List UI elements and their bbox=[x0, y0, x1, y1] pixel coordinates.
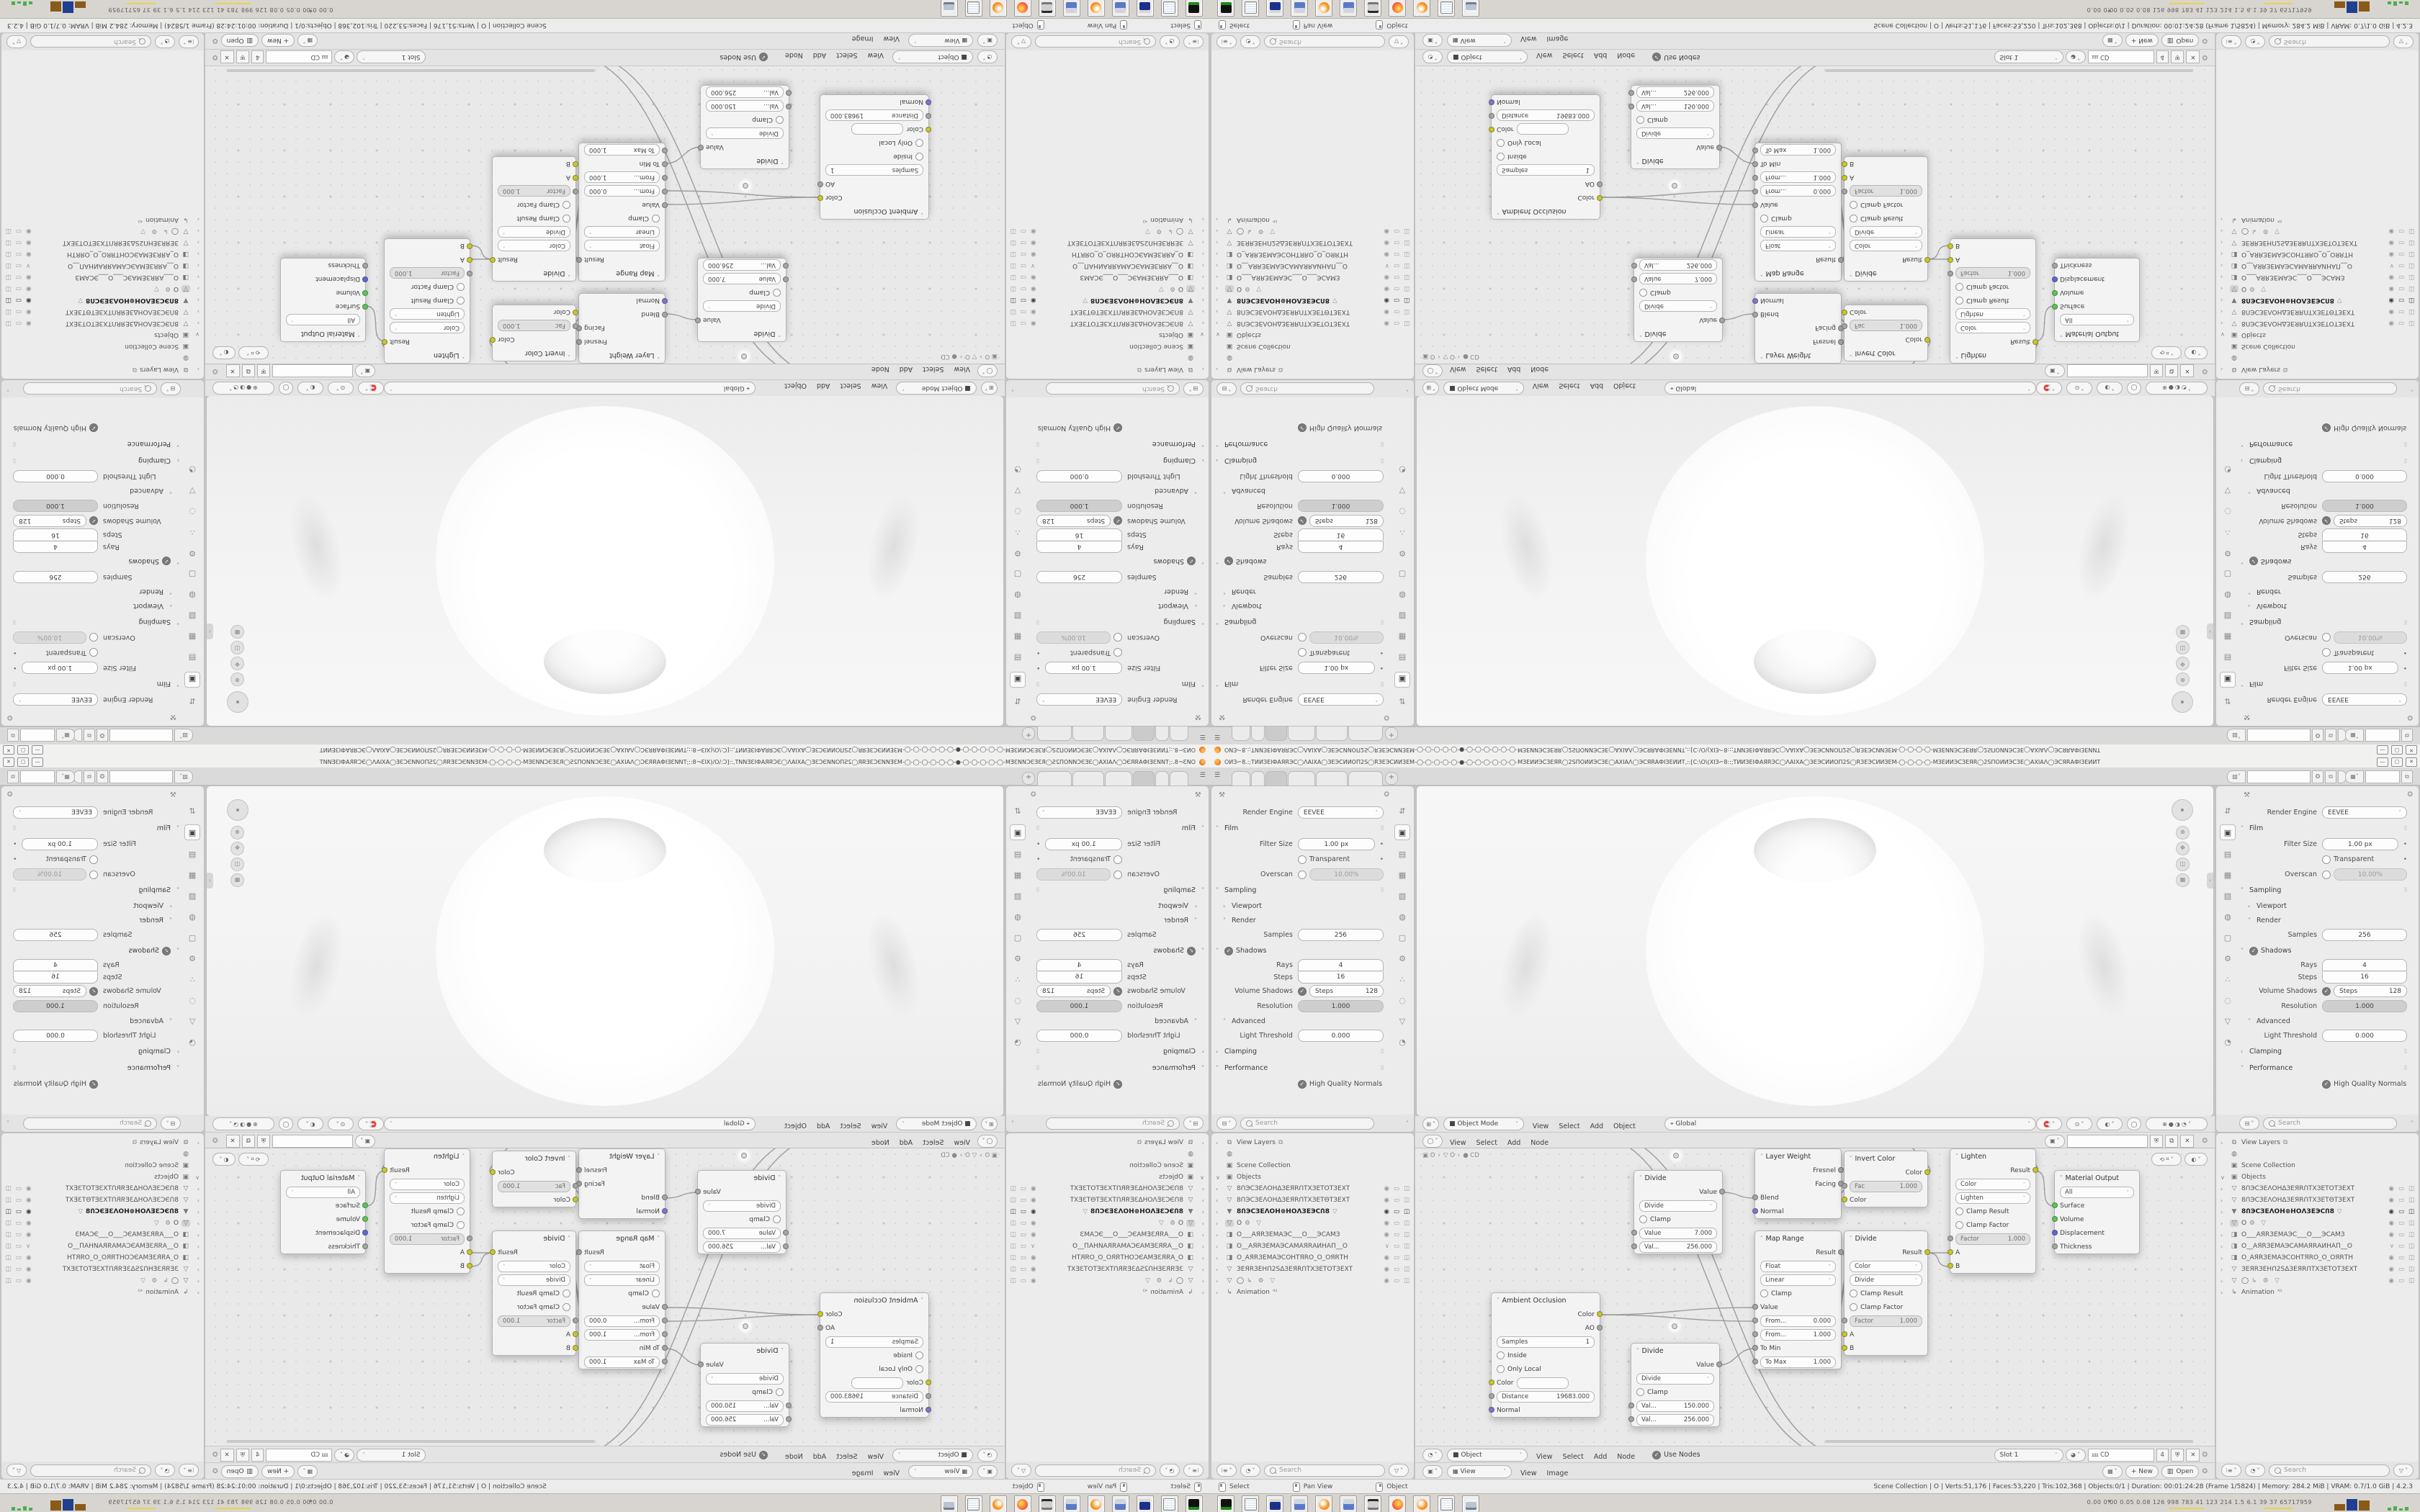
menu-view[interactable]: View bbox=[1536, 1453, 1553, 1461]
open-image-button[interactable]: ▥Open bbox=[221, 35, 259, 48]
prop-field[interactable]: 16 bbox=[2322, 529, 2407, 541]
node-divide-top[interactable]: ˅DivideValueDivide˅ClampValue7.000Val...… bbox=[697, 1170, 786, 1254]
disable-render-icon[interactable]: ◫ bbox=[6, 285, 12, 292]
hide-eye-icon[interactable]: ◉ bbox=[2389, 1266, 2394, 1273]
search-input[interactable]: Search bbox=[2263, 383, 2397, 395]
properties-tab-object-icon[interactable]: ▢ bbox=[1010, 567, 1025, 582]
outliner-row-objects[interactable]: ∨▣Objects bbox=[1009, 329, 1204, 341]
properties-tab-tool-icon[interactable]: ⇵ bbox=[1010, 694, 1025, 708]
prop-section-clamping[interactable]: ›Clamping⠿ bbox=[2241, 1043, 2414, 1060]
breadcrumb-item[interactable]: ▽ O bbox=[1443, 1152, 1455, 1159]
output-socket[interactable] bbox=[382, 339, 387, 345]
node-title[interactable]: ˅Layer Weight bbox=[1755, 1149, 1841, 1164]
pin-icon[interactable]: ✪ bbox=[212, 54, 218, 61]
outliner-row-animation[interactable]: ›↳Animation⁴² bbox=[1009, 214, 1204, 225]
taskbar-app-printer[interactable] bbox=[941, 1495, 958, 1512]
users-count-button[interactable]: 4 bbox=[251, 51, 264, 64]
checkbox-overscan[interactable] bbox=[89, 870, 98, 879]
workspace-tab[interactable] bbox=[1251, 771, 1265, 786]
hide-eye-icon[interactable]: ◉ bbox=[26, 1220, 31, 1227]
taskbar-app-blender[interactable] bbox=[1413, 1495, 1430, 1512]
menu-select[interactable]: Select bbox=[1476, 1139, 1497, 1147]
disable-viewport-icon[interactable]: ▭ bbox=[16, 1254, 22, 1261]
input-socket[interactable] bbox=[362, 1202, 368, 1208]
input-socket[interactable] bbox=[1752, 1208, 1758, 1214]
disable-render-icon[interactable]: ◫ bbox=[1404, 1220, 1410, 1227]
copy-icon[interactable]: ⧉ bbox=[2325, 770, 2336, 783]
disable-viewport-icon[interactable]: ▭ bbox=[1021, 1254, 1026, 1261]
disable-viewport-icon[interactable]: ▭ bbox=[1394, 1231, 1399, 1238]
hide-eye-icon[interactable]: ◉ bbox=[26, 1208, 31, 1215]
mode-dropdown[interactable]: ■ Object Mode˅ bbox=[896, 382, 977, 395]
menu-view[interactable]: View bbox=[1536, 51, 1553, 59]
prop-field[interactable]: 10.00% bbox=[1036, 631, 1111, 644]
node-dropdown-divide[interactable]: Divide˅ bbox=[706, 128, 784, 140]
node-checkbox-clamp-factor[interactable] bbox=[457, 283, 465, 291]
outliner-object-row[interactable]: ›▽ЗЕЯRЗЕНՈ2SΔЗЕЯRՈТХЗЕТОТЗЕХТ◉▭◫ bbox=[2220, 237, 2416, 248]
workspace-tab[interactable] bbox=[1232, 771, 1250, 786]
horizontal-scrollbar[interactable] bbox=[1825, 1440, 2193, 1443]
node-dropdown-lighten[interactable]: Lighten˅ bbox=[390, 1192, 465, 1204]
expand-arrow-icon[interactable]: › bbox=[1198, 228, 1204, 235]
menu-hamburger-icon[interactable]: ☰ bbox=[1214, 772, 1223, 779]
output-socket[interactable] bbox=[1924, 1249, 1930, 1255]
outliner-row-animation[interactable]: ›↳Animation⁴² bbox=[4, 1287, 200, 1298]
scene-name-field[interactable] bbox=[2247, 770, 2311, 783]
output-socket[interactable] bbox=[490, 1169, 496, 1175]
properties-tab-object-data-icon[interactable]: ▽ bbox=[2220, 1014, 2235, 1028]
properties-tab-material-icon[interactable]: ◔ bbox=[1010, 1035, 1025, 1049]
properties-tab-object-data-icon[interactable]: ▽ bbox=[1395, 1014, 1410, 1028]
disable-viewport-icon[interactable]: ▭ bbox=[1394, 1254, 1399, 1261]
navigation-gizmo[interactable] bbox=[2172, 799, 2193, 821]
close-icon[interactable]: ✕ bbox=[226, 1135, 240, 1148]
node-field-value[interactable]: Value7.000 bbox=[703, 274, 781, 285]
hide-eye-icon[interactable]: ◉ bbox=[1384, 320, 1389, 327]
properties-tab-scene-icon[interactable]: ▧ bbox=[1010, 888, 1025, 903]
input-socket[interactable] bbox=[1948, 243, 1953, 249]
expand-arrow-icon[interactable]: › bbox=[1198, 263, 1204, 269]
tool-icon[interactable]: ⚒ bbox=[2244, 791, 2250, 799]
properties-tab-render-icon[interactable]: ▣ bbox=[1010, 672, 1026, 688]
workspace-tab[interactable] bbox=[1105, 771, 1132, 786]
input-socket[interactable] bbox=[362, 1216, 368, 1222]
disable-render-icon[interactable]: ◫ bbox=[1010, 1243, 1016, 1250]
disable-viewport-icon[interactable]: ▭ bbox=[16, 285, 22, 292]
editor-type-dropdown[interactable]: ◯˅ bbox=[1422, 1135, 1443, 1148]
node-field-factor[interactable]: Factor1.000 bbox=[1955, 268, 2030, 279]
disable-render-icon[interactable]: ◫ bbox=[6, 1208, 12, 1215]
properties-tab-physics-icon[interactable]: ◌ bbox=[2220, 993, 2235, 1007]
copy-icon[interactable]: ⧉ bbox=[7, 729, 19, 742]
disable-render-icon[interactable]: ◫ bbox=[1010, 1266, 1016, 1273]
zoom-icon[interactable]: ⊕ bbox=[2177, 673, 2189, 685]
node-dropdown-color[interactable]: Color˅ bbox=[390, 1179, 465, 1190]
input-socket[interactable] bbox=[573, 161, 578, 167]
disable-viewport-icon[interactable]: ▭ bbox=[1394, 308, 1399, 315]
node-title[interactable]: ˅Ambient Occlusion bbox=[1492, 1293, 1600, 1308]
node-field-factor[interactable]: Factor1.000 bbox=[1850, 186, 1922, 197]
pin-icon[interactable]: ✪ bbox=[212, 1452, 218, 1459]
node-divide-bottom[interactable]: ˅DivideValueDivide˅ClampVal...150.000Val… bbox=[700, 1343, 789, 1427]
menu-select[interactable]: Select bbox=[1559, 382, 1579, 390]
node-field-from[interactable]: From...0.000 bbox=[584, 186, 660, 197]
checkbox-high-quality-normals[interactable]: ✓ bbox=[89, 1080, 98, 1089]
expand-arrow-icon[interactable]: ∨ bbox=[2220, 1174, 2227, 1181]
menu-add[interactable]: Add bbox=[817, 1122, 830, 1130]
transform-orientation-dropdown[interactable]: ⌖ Global˅ bbox=[384, 1117, 756, 1130]
animate-dot-icon[interactable]: • bbox=[1036, 649, 1040, 657]
node-field-from[interactable]: From...0.000 bbox=[1760, 1315, 1836, 1327]
outliner-object-row[interactable]: ›▽8ՈЭСЗЕΛОНΔЗЕЯRՈТХЗЕТΘТЗЕХТ◉▭◫ bbox=[1216, 306, 1411, 318]
menu-view[interactable]: View bbox=[867, 51, 884, 59]
prop-section-clamping[interactable]: ›Clamping⠿ bbox=[1216, 452, 1391, 469]
animate-dot-icon[interactable]: • bbox=[1036, 665, 1040, 672]
chevron-down-icon[interactable]: ˅ bbox=[1406, 1120, 1409, 1127]
prop-field[interactable]: 4 bbox=[1036, 959, 1122, 971]
menu-select[interactable]: Select bbox=[836, 51, 857, 59]
menu-view[interactable]: View bbox=[1450, 1139, 1466, 1147]
expand-arrow-icon[interactable]: › bbox=[1198, 1232, 1204, 1238]
prop-select-eevee[interactable]: EEVEE˅ bbox=[1036, 693, 1122, 706]
hide-eye-icon[interactable]: ◉ bbox=[2389, 239, 2394, 246]
hide-eye-icon[interactable]: ◉ bbox=[1384, 1197, 1389, 1204]
disable-render-icon[interactable]: ◫ bbox=[2408, 274, 2414, 281]
menu-view[interactable]: View bbox=[883, 35, 900, 42]
scene-selector[interactable]: ▧˅ ✪ ⧉ bbox=[73, 770, 193, 783]
properties-tab-physics-icon[interactable]: ◌ bbox=[1010, 993, 1025, 1007]
outliner-object-row[interactable]: ›▽◯↳ ⚙ ▽◉▭◫ bbox=[2220, 225, 2416, 237]
outliner-object-row[interactable]: ›▼8ՈЭСЗЕΛОН⊕НОΛЗЕЭСՈ8▽◉▭◫ bbox=[1009, 1206, 1204, 1218]
checkbox-high-quality-normals[interactable]: ✓ bbox=[1113, 424, 1122, 433]
checkbox-shadows[interactable]: ✓ bbox=[2249, 557, 2258, 566]
node-invert-color[interactable]: ˅Invert ColorColorFac1.000Color bbox=[492, 1151, 576, 1207]
node-title[interactable]: ˅Layer Weight bbox=[579, 348, 665, 363]
outliner-object-row[interactable]: ›▼8ՈЭСЗЕΛОН⊕НОΛЗЕЭСՈ8▽◉▭◫ bbox=[1216, 294, 1411, 306]
node-divide-bottom[interactable]: ˅DivideValueDivide˅ClampVal...150.000Val… bbox=[1631, 1343, 1720, 1427]
node-layer-weight[interactable]: ˅Layer WeightFresnelFacingBlendNormal bbox=[1754, 1148, 1842, 1219]
disable-render-icon[interactable]: ◫ bbox=[2408, 239, 2414, 246]
node-field-factor[interactable]: Factor1.000 bbox=[390, 1233, 465, 1245]
outliner-object-row[interactable]: ›▽◯↳ ⚙ ▽◉▭◫ bbox=[1009, 1275, 1204, 1287]
expand-arrow-icon[interactable]: › bbox=[1198, 1243, 1204, 1250]
expand-arrow-icon[interactable]: › bbox=[193, 1140, 200, 1146]
copy-icon[interactable]: ⧉ bbox=[84, 729, 95, 742]
properties-tab-physics-icon[interactable]: ◌ bbox=[185, 505, 200, 519]
properties-tab-view-layer-icon[interactable]: ▦ bbox=[2220, 868, 2235, 882]
outliner-object-row[interactable]: ›▽O⚙ ▽◉▭◫ bbox=[2220, 283, 2416, 294]
taskbar-app-floppy[interactable] bbox=[1266, 1495, 1283, 1512]
reroute-node[interactable] bbox=[1667, 178, 1682, 194]
node-checkbox-clamp-factor[interactable] bbox=[1850, 1303, 1857, 1311]
menu-view[interactable]: View bbox=[1520, 35, 1537, 42]
disable-viewport-icon[interactable]: ▭ bbox=[16, 308, 22, 315]
menu-select[interactable]: Select bbox=[840, 1122, 861, 1130]
taskbar-app-notepad[interactable] bbox=[1161, 0, 1178, 17]
properties-tab-modifiers-icon[interactable]: ⚙ bbox=[185, 546, 200, 561]
output-socket[interactable] bbox=[817, 1325, 823, 1331]
fake-user-shield-icon[interactable]: ⛨ bbox=[2150, 1135, 2163, 1148]
menu-image[interactable]: Image bbox=[852, 1470, 874, 1477]
properties-tab-material-icon[interactable]: ◔ bbox=[1010, 463, 1025, 477]
outliner-filter-icon[interactable]: ◔˅ bbox=[155, 35, 175, 48]
disable-render-icon[interactable]: ◫ bbox=[6, 239, 12, 246]
output-socket[interactable] bbox=[817, 181, 823, 187]
expand-arrow-icon[interactable]: › bbox=[193, 217, 200, 223]
workspace-tab[interactable] bbox=[1170, 771, 1188, 786]
use-nodes-checkbox[interactable]: ✓ bbox=[759, 1451, 768, 1459]
taskbar-app-blender[interactable] bbox=[1315, 1495, 1332, 1512]
outliner-object-row[interactable]: ›▽◯↳ ⚙ ▽◉▭◫ bbox=[1216, 1275, 1411, 1287]
properties-tab-tool-icon[interactable]: ⇵ bbox=[185, 804, 200, 818]
outliner-row-objects[interactable]: ∨▣Objects bbox=[4, 1171, 200, 1183]
input-socket[interactable] bbox=[467, 257, 472, 263]
outliner-object-row[interactable]: ›▽8ՈЭСЗЕΛОНΔЗЕЯRՈТХЗЕТОТЗЕХТ◉▭◫ bbox=[1216, 318, 1411, 329]
properties-tab-material-icon[interactable]: ◔ bbox=[185, 463, 200, 477]
hide-eye-icon[interactable]: ◉ bbox=[26, 274, 31, 281]
node-field-value[interactable]: Value7.000 bbox=[1639, 1228, 1717, 1239]
prop-field[interactable]: 1.00 px bbox=[22, 838, 98, 850]
expand-arrow-icon[interactable]: › bbox=[2220, 1243, 2227, 1250]
hide-eye-icon[interactable]: ◉ bbox=[1031, 228, 1036, 235]
node-checkbox-inside[interactable] bbox=[915, 1351, 923, 1359]
input-socket[interactable] bbox=[1489, 113, 1494, 119]
prop-section-clamping[interactable]: ›Clamping⠿ bbox=[1029, 1043, 1204, 1060]
disable-render-icon[interactable]: ◫ bbox=[2408, 297, 2414, 304]
shader-type-dropdown[interactable]: ■ Object˅ bbox=[1447, 1449, 1528, 1462]
editor-type-dropdown[interactable]: ◯˅ bbox=[977, 1135, 998, 1148]
taskbar-app-monitor[interactable] bbox=[1364, 0, 1381, 17]
node-dropdown-all[interactable]: All˅ bbox=[2060, 1187, 2134, 1198]
outliner-row-animation[interactable]: ›↳Animation⁴² bbox=[1216, 214, 1411, 225]
prop-section-film[interactable]: ˅Film⠿ bbox=[2241, 675, 2414, 692]
node-checkbox-clamp-factor[interactable] bbox=[457, 1221, 465, 1229]
menu-hamburger-icon[interactable]: ☰ bbox=[1214, 733, 1223, 740]
taskbar-app-notepad[interactable] bbox=[965, 1495, 982, 1512]
reroute-node[interactable] bbox=[1667, 1318, 1682, 1334]
properties-tab-scene-icon[interactable]: ▧ bbox=[185, 888, 200, 903]
node-field-value[interactable]: Value7.000 bbox=[1639, 274, 1717, 285]
disable-viewport-icon[interactable]: ▭ bbox=[1021, 274, 1026, 281]
disable-render-icon[interactable]: ◫ bbox=[6, 308, 12, 315]
node-dropdown-color[interactable]: Color˅ bbox=[390, 323, 465, 334]
output-socket[interactable] bbox=[2033, 339, 2038, 345]
prop-section-shadows[interactable]: ˅✓Shadows bbox=[6, 942, 179, 959]
hide-eye-icon[interactable]: ◉ bbox=[2389, 1277, 2394, 1284]
tool-icon[interactable]: ⚒ bbox=[1195, 713, 1201, 721]
xray-toggle-icon[interactable]: ◯ bbox=[2127, 1117, 2141, 1130]
expand-arrow-icon[interactable]: › bbox=[193, 228, 200, 235]
menu-add[interactable]: Add bbox=[817, 382, 830, 390]
properties-tab-output-icon[interactable]: ▤ bbox=[1395, 651, 1410, 665]
prop-field[interactable]: Steps128 bbox=[13, 515, 86, 527]
disable-render-icon[interactable]: ◫ bbox=[6, 320, 12, 327]
input-socket[interactable] bbox=[1752, 148, 1758, 153]
properties-tab-modifiers-icon[interactable]: ⚙ bbox=[2220, 546, 2235, 561]
expand-arrow-icon[interactable]: › bbox=[193, 366, 200, 373]
disable-viewport-icon[interactable]: ▭ bbox=[1394, 274, 1399, 281]
chevron-down-icon[interactable]: ˅ bbox=[2411, 1120, 2414, 1127]
outliner-row-icon[interactable]: ◍ bbox=[1009, 352, 1204, 364]
prop-field[interactable]: 1.00 px bbox=[2322, 838, 2398, 850]
prop-section-film[interactable]: ˅Film⠿ bbox=[1216, 820, 1391, 837]
input-socket[interactable] bbox=[1842, 1331, 1847, 1337]
outliner-row-view-layers[interactable]: ›⧉View Layers⧉ bbox=[4, 364, 200, 375]
workspace-tab[interactable] bbox=[1037, 726, 1072, 741]
prop-field[interactable]: Steps128 bbox=[2334, 515, 2407, 527]
pin-icon[interactable]: ✪ bbox=[2202, 1138, 2208, 1145]
prop-field[interactable]: 0.000 bbox=[1298, 470, 1384, 482]
expand-arrow-icon[interactable]: › bbox=[2220, 1140, 2227, 1146]
disable-render-icon[interactable]: ◫ bbox=[1010, 1197, 1016, 1204]
disable-render-icon[interactable]: ◫ bbox=[1010, 1185, 1016, 1192]
prop-subsection-advanced[interactable]: ˅Advanced bbox=[2241, 484, 2414, 498]
disable-viewport-icon[interactable]: ▭ bbox=[1394, 297, 1399, 304]
output-socket[interactable] bbox=[576, 1249, 582, 1255]
input-socket[interactable] bbox=[926, 1380, 931, 1385]
minimize-button[interactable]: — bbox=[2377, 746, 2388, 755]
pin-icon[interactable]: ✪ bbox=[2202, 368, 2208, 375]
properties-tab-world-icon[interactable]: ◍ bbox=[1395, 909, 1410, 924]
outliner-object-row[interactable]: ›▽ЗЕЯRЗЕНՈ2SΔЗЕЯRՈТХЗЕТОТЗЕХТ◉▭◫ bbox=[1009, 1264, 1204, 1275]
search-input[interactable]: Search bbox=[30, 36, 151, 48]
node-dropdown-divide[interactable]: Divide˅ bbox=[1850, 1274, 1922, 1286]
prop-field[interactable]: 16 bbox=[13, 529, 98, 541]
disable-render-icon[interactable]: ◫ bbox=[1010, 251, 1016, 258]
expand-arrow-icon[interactable]: › bbox=[2220, 1255, 2227, 1261]
animate-dot-icon[interactable]: • bbox=[1036, 856, 1040, 863]
outliner-object-row[interactable]: ›▼8ՈЭСЗЕΛОН⊕НОΛЗЕЭСՈ8▽◉▭◫ bbox=[1009, 294, 1204, 306]
input-socket[interactable] bbox=[1752, 189, 1758, 194]
taskbar-app-monitor[interactable] bbox=[1364, 1495, 1381, 1512]
input-socket[interactable] bbox=[362, 1230, 368, 1236]
node-field-from[interactable]: From...0.000 bbox=[584, 1315, 660, 1327]
breadcrumb-item[interactable]: ▽ O bbox=[965, 1152, 977, 1159]
input-socket[interactable] bbox=[662, 148, 668, 153]
reroute-node[interactable] bbox=[1668, 1148, 1684, 1164]
breadcrumb-item[interactable]: ● CD bbox=[941, 353, 957, 360]
expand-arrow-icon[interactable]: ∨ bbox=[1216, 1174, 1222, 1181]
outliner-object-row[interactable]: ›▽O⚙ ▽◉▭◫ bbox=[1009, 283, 1204, 294]
disable-viewport-icon[interactable]: ▭ bbox=[2398, 320, 2404, 327]
checkbox-shadows[interactable]: ✓ bbox=[1187, 557, 1196, 566]
disable-render-icon[interactable]: ◫ bbox=[1404, 1266, 1410, 1273]
node-dropdown-linear[interactable]: Linear˅ bbox=[1760, 227, 1836, 238]
disable-render-icon[interactable]: ◫ bbox=[2408, 1197, 2414, 1204]
properties-filter-dropdown[interactable]: ⊟˅ bbox=[1216, 382, 1237, 395]
disable-render-icon[interactable]: ◫ bbox=[1404, 228, 1410, 235]
pin-icon[interactable]: ✪ bbox=[7, 714, 13, 721]
node-field-val[interactable]: Val...256.000 bbox=[1639, 260, 1717, 271]
pin-icon[interactable]: ✪ bbox=[2202, 37, 2208, 45]
input-socket[interactable] bbox=[1489, 127, 1494, 132]
close-button[interactable]: ✕ bbox=[3, 757, 14, 767]
prop-section-sampling[interactable]: ˅Sampling⠿ bbox=[1029, 613, 1204, 630]
outliner-object-row[interactable]: ›▼8ՈЭСЗЕΛОН⊕НОΛЗЕЭСՈ8▽◉▭◫ bbox=[4, 294, 200, 306]
properties-tab-modifiers-icon[interactable]: ⚙ bbox=[1010, 546, 1025, 561]
properties-tab-modifiers-icon[interactable]: ⚙ bbox=[1395, 951, 1410, 966]
hide-eye-icon[interactable]: ◉ bbox=[1031, 251, 1036, 258]
node-color-field[interactable] bbox=[852, 124, 904, 135]
input-socket[interactable] bbox=[662, 1304, 668, 1310]
disable-render-icon[interactable]: ◫ bbox=[1404, 1185, 1410, 1192]
shading-mode-buttons[interactable]: ⊕●◑◔˅ bbox=[212, 1117, 274, 1130]
editor-type-dropdown[interactable]: ◔˅ bbox=[1422, 51, 1443, 64]
node-lighten[interactable]: ˅LightenResultColor˅Lighten˅Clamp Result… bbox=[1950, 238, 2036, 364]
material-name-field[interactable]: ⅏ CD bbox=[266, 1449, 332, 1462]
prop-field[interactable]: Steps128 bbox=[2334, 985, 2407, 997]
chevron-down-icon[interactable]: ˅ bbox=[1011, 386, 1014, 392]
tool-icon[interactable]: ⚒ bbox=[170, 713, 176, 721]
proportional-edit-icon[interactable]: ⊙˅ bbox=[2066, 1117, 2092, 1130]
slot-dropdown[interactable]: Slot 1˅ bbox=[357, 51, 426, 64]
prop-slider[interactable]: 1.000 bbox=[13, 500, 98, 512]
search-input[interactable]: Search bbox=[1035, 36, 1156, 48]
workspace-tab[interactable] bbox=[1155, 771, 1169, 786]
hide-eye-icon[interactable]: ◉ bbox=[26, 1197, 31, 1204]
disable-render-icon[interactable]: ◫ bbox=[2408, 228, 2414, 235]
node-checkbox-clamp-result[interactable] bbox=[563, 215, 570, 222]
animate-dot-icon[interactable]: • bbox=[2403, 841, 2407, 848]
node-dropdown-float[interactable]: Float˅ bbox=[584, 1261, 660, 1272]
properties-tab-modifiers-icon[interactable]: ⚙ bbox=[1395, 546, 1410, 561]
input-socket[interactable] bbox=[662, 161, 668, 167]
properties-tab-tool-icon[interactable]: ⇵ bbox=[1010, 804, 1025, 818]
disable-render-icon[interactable]: ◫ bbox=[1010, 1220, 1016, 1227]
snap-magnet-icon[interactable]: 🧲˅ bbox=[2036, 1117, 2062, 1130]
node-map-range[interactable]: ˅Map RangeResultFloat˅Linear˅ClampValueF… bbox=[1754, 143, 1842, 282]
hide-eye-icon[interactable]: ◉ bbox=[1031, 1254, 1036, 1261]
menu-add[interactable]: Add bbox=[813, 1453, 826, 1461]
view-layer-name-field[interactable] bbox=[2365, 770, 2400, 783]
horizontal-scrollbar[interactable] bbox=[1825, 69, 2193, 72]
input-socket[interactable] bbox=[2052, 1202, 2058, 1208]
menu-node[interactable]: Node bbox=[1531, 1139, 1549, 1147]
expand-arrow-icon[interactable]: › bbox=[193, 1232, 200, 1238]
editor-type-dropdown[interactable]: ◔˅ bbox=[977, 1449, 998, 1462]
input-socket[interactable] bbox=[2052, 263, 2058, 269]
node-dropdown-color[interactable]: Color˅ bbox=[498, 240, 570, 252]
outliner-object-row[interactable]: ›▽◯↳ ⚙ ▽◉▭◫ bbox=[1009, 225, 1204, 237]
input-socket[interactable] bbox=[1948, 1263, 1953, 1269]
node-field-val[interactable]: Val...150.000 bbox=[706, 1400, 784, 1412]
proportional-edit-icon[interactable]: ⊙˅ bbox=[328, 1117, 354, 1130]
input-socket[interactable] bbox=[1948, 257, 1953, 263]
output-socket[interactable] bbox=[382, 1167, 387, 1173]
prop-section-sampling[interactable]: ˅Sampling⠿ bbox=[6, 882, 179, 899]
disable-render-icon[interactable]: ◫ bbox=[6, 297, 12, 304]
properties-tab-physics-icon[interactable]: ◌ bbox=[1395, 505, 1410, 519]
outliner-row-icon[interactable]: ◍ bbox=[1009, 1148, 1204, 1160]
prop-section-film[interactable]: ˅Film⠿ bbox=[6, 675, 179, 692]
input-socket[interactable] bbox=[362, 1243, 368, 1249]
outliner-object-row[interactable]: ›◨O_АЯRЗЕМАЭСОНТЯRО_О_ОЯRТН◉▭◫ bbox=[2220, 248, 2416, 260]
hide-eye-icon[interactable]: ◉ bbox=[2389, 1231, 2394, 1238]
hide-eye-icon[interactable]: ◉ bbox=[1031, 1266, 1036, 1273]
new-image-button[interactable]: + New bbox=[261, 35, 295, 48]
sidebar-toggle[interactable]: ‹ bbox=[207, 873, 213, 888]
hide-eye-icon[interactable]: ◉ bbox=[1384, 285, 1389, 292]
close-button[interactable]: ✕ bbox=[2406, 746, 2417, 755]
checkbox-shadows[interactable]: ✓ bbox=[162, 947, 171, 955]
prop-field[interactable]: 0.000 bbox=[1036, 470, 1122, 482]
outliner-row-animation[interactable]: ›↳Animation⁴² bbox=[4, 214, 200, 225]
disable-viewport-icon[interactable]: ▭ bbox=[1021, 1185, 1026, 1192]
output-socket[interactable] bbox=[1716, 145, 1722, 150]
expand-arrow-icon[interactable]: › bbox=[1198, 240, 1204, 246]
node-field-fac[interactable]: Fac1.000 bbox=[1850, 320, 1922, 332]
3d-viewport[interactable]: ⊕ ✥ ◫ ▦ ‹ bbox=[1417, 786, 2213, 1116]
